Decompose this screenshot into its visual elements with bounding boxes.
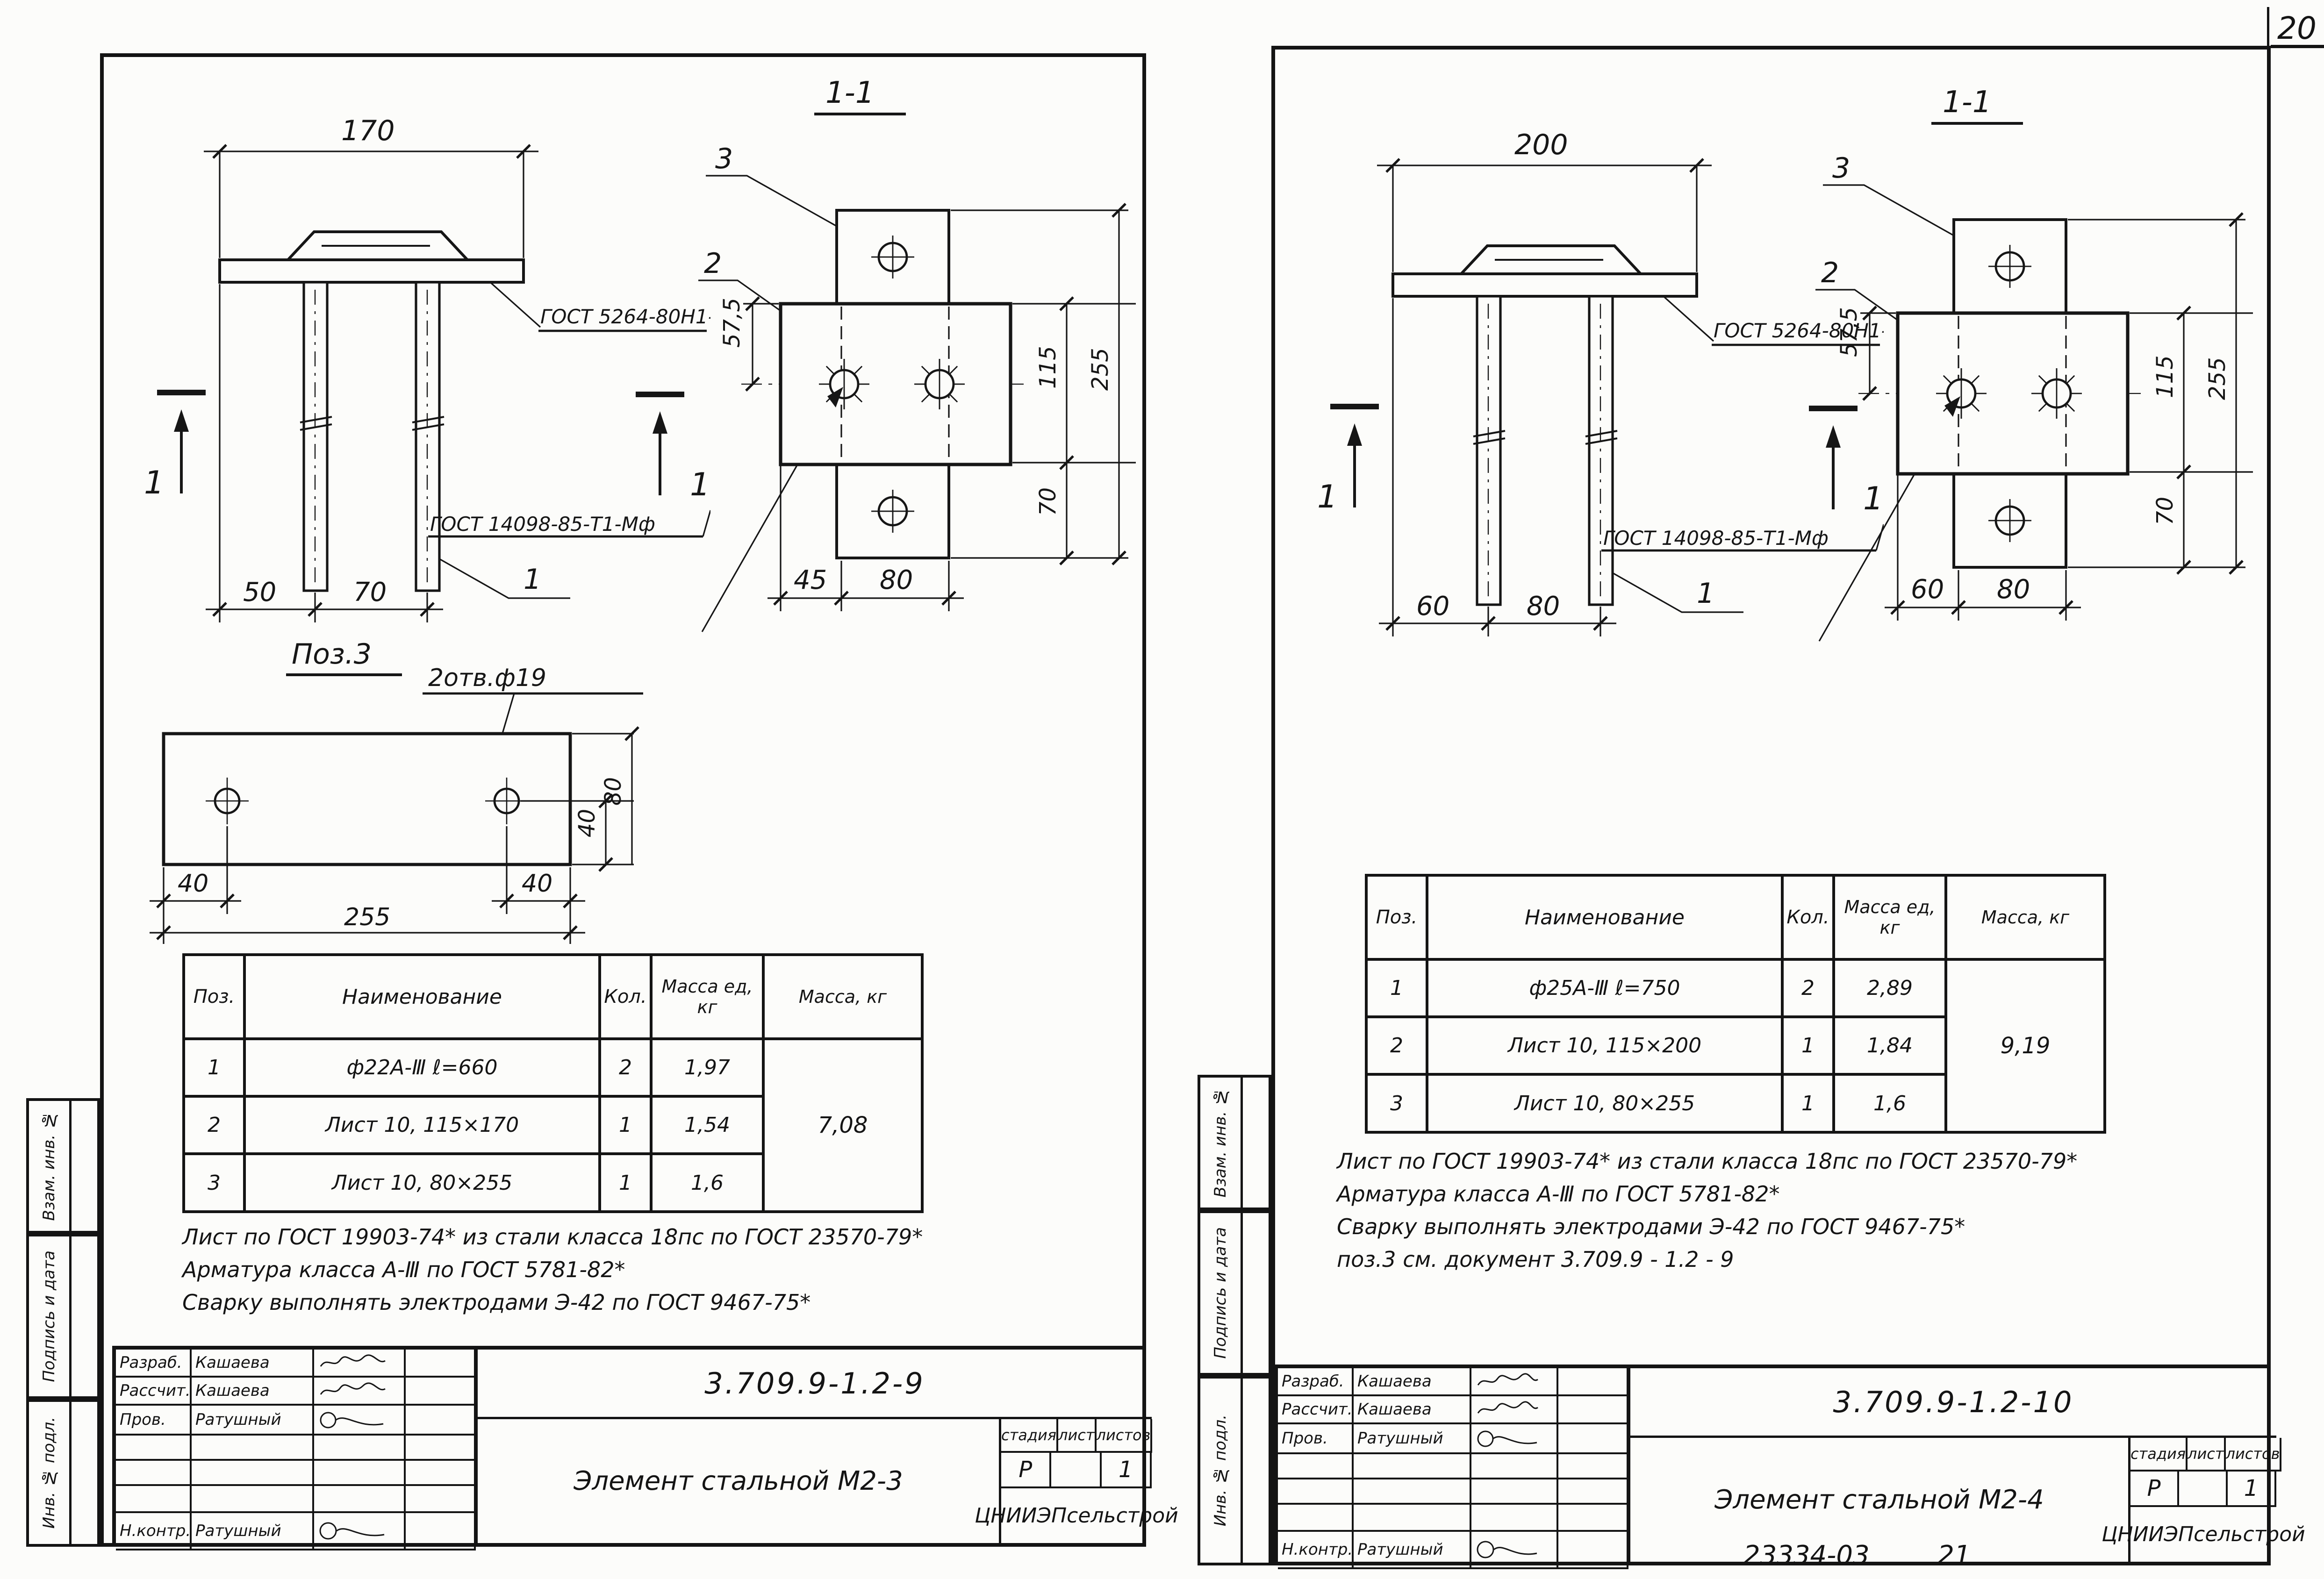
margin-label: Инв. № подл.: [1200, 1379, 1243, 1563]
col-header: Поз.: [1366, 875, 1427, 959]
signature: [314, 1378, 406, 1406]
col-header: Наименование: [1427, 875, 1782, 959]
section-title: 1-1: [825, 76, 875, 110]
holes-callout: 2отв.ф19: [428, 664, 546, 692]
margin-box-podpis-left: Подпись и дата: [26, 1234, 100, 1399]
elevation-drawing-left: 1 1 ГОСТ 5264-80Н1-△6 ГОСТ 14098-85-Т1-М…: [131, 93, 710, 636]
spec-table-right: Поз. Наименование Кол. Масса ед, кг Масс…: [1365, 874, 2106, 1134]
margin-label: Взам. инв. №: [1200, 1078, 1243, 1207]
notes-left: Лист по ГОСТ 19903-74* из стали класса 1…: [182, 1221, 923, 1319]
dim: 255: [2204, 357, 2231, 400]
note-line: Арматура класса А-Ⅲ по ГОСТ 5781-82*: [182, 1253, 923, 1286]
drawing-title: Элемент стальной М2-3: [478, 1419, 999, 1543]
doc-number: 3.709.9-1.2-9: [478, 1350, 1152, 1419]
top-frame-extension: [2271, 45, 2324, 48]
dim: 70: [353, 577, 387, 607]
pos-leader: 3: [715, 143, 733, 175]
col-header: Масса, кг: [763, 955, 922, 1039]
margin-label: Инв. № подл.: [29, 1402, 72, 1544]
stamp-signature-grid: Разраб.Кашаева Рассчит.Кашаева Пров.Рату…: [1278, 1368, 1628, 1562]
table-row: 1 ф25А-Ⅲ ℓ=750 2 2,89 9,19: [1366, 959, 2105, 1017]
col-header: Поз.: [184, 955, 244, 1039]
col-header: Масса ед, кг: [1834, 875, 1946, 959]
org-name: ЦНИИЭПсельстрой: [1001, 1488, 1152, 1543]
spec-table-left: Поз. Наименование Кол. Масса ед, кг Масс…: [182, 953, 924, 1213]
dim: 115: [1035, 346, 1061, 389]
note-line: поз.3 см. документ 3.709.9 - 1.2 - 9: [1337, 1243, 2077, 1276]
col-header: Кол.: [1782, 875, 1834, 959]
col-header: Наименование: [244, 955, 600, 1039]
footer-page: 21: [1937, 1540, 1971, 1571]
margin-label: Подпись и дата: [29, 1236, 72, 1396]
svg-text:1: 1: [1317, 479, 1337, 515]
dim: 115: [2152, 355, 2178, 398]
dim: 80: [1997, 574, 2030, 605]
signature: [1471, 1368, 1558, 1396]
dim: 57,5: [1836, 307, 1862, 357]
signature: [314, 1406, 406, 1436]
section-drawing-left: 1-1: [696, 65, 1145, 645]
margin-box-inv-left: Инв. № подл.: [26, 1399, 100, 1547]
stage-value: Р: [1001, 1453, 1051, 1488]
dim: 40: [178, 870, 208, 898]
signature: [1471, 1424, 1558, 1454]
col-header: Масса ед, кг: [651, 955, 763, 1039]
stage-value: Р: [2130, 1472, 2179, 1507]
pos-leader: 3: [1832, 152, 1850, 185]
elevation-drawing-right: 1 1 ГОСТ 5264-80Н1-△6 ГОСТ 14098-85-Т1-М…: [1304, 107, 1884, 650]
svg-text:1: 1: [144, 464, 164, 501]
detail-title: Поз.3: [292, 638, 372, 671]
signature: [1471, 1532, 1558, 1569]
scanned-drawing-page: 20 Взам. инв. № Подпись и дата Инв. № по…: [0, 0, 2324, 1579]
margin-box-inv-right: Инв. № подл.: [1198, 1376, 1271, 1565]
note-line: Арматура класса А-Ⅲ по ГОСТ 5781-82*: [1337, 1178, 2077, 1210]
sheet-value: [2179, 1472, 2228, 1507]
notes-right: Лист по ГОСТ 19903-74* из стали класса 1…: [1337, 1145, 2077, 1276]
dim: 50: [243, 577, 276, 607]
note-line: Лист по ГОСТ 19903-74* из стали класса 1…: [182, 1221, 923, 1253]
weld-gost-label: ГОСТ 5264-80Н1-△6: [540, 305, 710, 328]
dim: 57,5: [719, 298, 745, 348]
page-number: 20: [2277, 10, 2317, 46]
sheets-header: листов: [1097, 1419, 1153, 1453]
margin-box-podpis-right: Подпись и дата: [1198, 1210, 1271, 1376]
dim: 60: [1416, 591, 1449, 622]
total-mass: 9,19: [1946, 959, 2105, 1132]
dim: 255: [344, 903, 390, 931]
footer-code: 23334-03 21: [1743, 1540, 1971, 1571]
pos-leader: 2: [1821, 257, 1839, 289]
title-block-right: Разраб.Кашаева Рассчит.Кашаева Пров.Рату…: [1274, 1365, 2271, 1565]
signature: [1471, 1396, 1558, 1424]
stamp-signature-grid: Разраб.Кашаева Рассчит.Кашаева Пров.Рату…: [116, 1350, 476, 1543]
signature: [314, 1350, 406, 1378]
table-row: 1 ф22А-Ⅲ ℓ=660 2 1,97 7,08: [184, 1039, 922, 1096]
detail-drawing-pos3: Поз.3 2отв.ф19 40 40 255 40 80: [122, 636, 645, 944]
dim-width: 200: [1514, 129, 1568, 161]
dim: 80: [1527, 591, 1560, 622]
margin-box-vzam-right: Взам. инв. №: [1198, 1075, 1271, 1210]
sheet-header: лист: [2188, 1438, 2225, 1472]
margin-box-vzam-left: Взам. инв. №: [26, 1098, 100, 1234]
col-header: Кол.: [600, 955, 651, 1039]
margin-label: Подпись и дата: [1200, 1213, 1243, 1373]
sheets-value: 1: [1102, 1453, 1152, 1488]
weld-gost-label: ГОСТ 14098-85-Т1-Мф: [430, 513, 655, 536]
col-header: Масса, кг: [1946, 875, 2105, 959]
doc-number: 3.709.9-1.2-10: [1630, 1368, 2276, 1438]
dim: 80: [880, 565, 913, 595]
dim: 70: [2152, 497, 2178, 525]
note-line: Лист по ГОСТ 19903-74* из стали класса 1…: [1337, 1145, 2077, 1178]
note-line: Сварку выполнять электродами Э-42 по ГОС…: [1337, 1210, 2077, 1243]
sheet-header: лист: [1058, 1419, 1096, 1453]
dim: 255: [1087, 348, 1113, 391]
sheets-header: листов: [2226, 1438, 2282, 1472]
dim: 80: [600, 777, 626, 806]
title-block-left: Разраб.Кашаева Рассчит.Кашаева Пров.Рату…: [112, 1346, 1146, 1547]
sheets-value: 1: [2228, 1472, 2276, 1507]
dim: 45: [794, 565, 827, 595]
stage-header: стадия: [2130, 1438, 2188, 1472]
pos-leader: 2: [704, 247, 722, 280]
weld-gost-label: ГОСТ 14098-85-Т1-Мф: [1603, 527, 1829, 550]
total-mass: 7,08: [763, 1039, 922, 1212]
section-drawing-right: 1-1: [1814, 75, 2262, 654]
dim: 70: [1035, 487, 1061, 516]
dim: 40: [522, 870, 552, 898]
dim: 60: [1911, 574, 1944, 605]
dim-width: 170: [341, 114, 395, 147]
margin-label: Взам. инв. №: [29, 1101, 72, 1231]
stage-header: стадия: [1001, 1419, 1058, 1453]
org-name: ЦНИИЭПсельстрой: [2130, 1507, 2276, 1562]
signature: [314, 1513, 406, 1550]
sheet-value: [1051, 1453, 1101, 1488]
position-leader: 1: [1697, 577, 1714, 610]
dim: 40: [574, 809, 600, 837]
section-title: 1-1: [1943, 85, 1992, 120]
position-leader: 1: [524, 563, 541, 596]
note-line: Сварку выполнять электродами Э-42 по ГОС…: [182, 1286, 923, 1319]
